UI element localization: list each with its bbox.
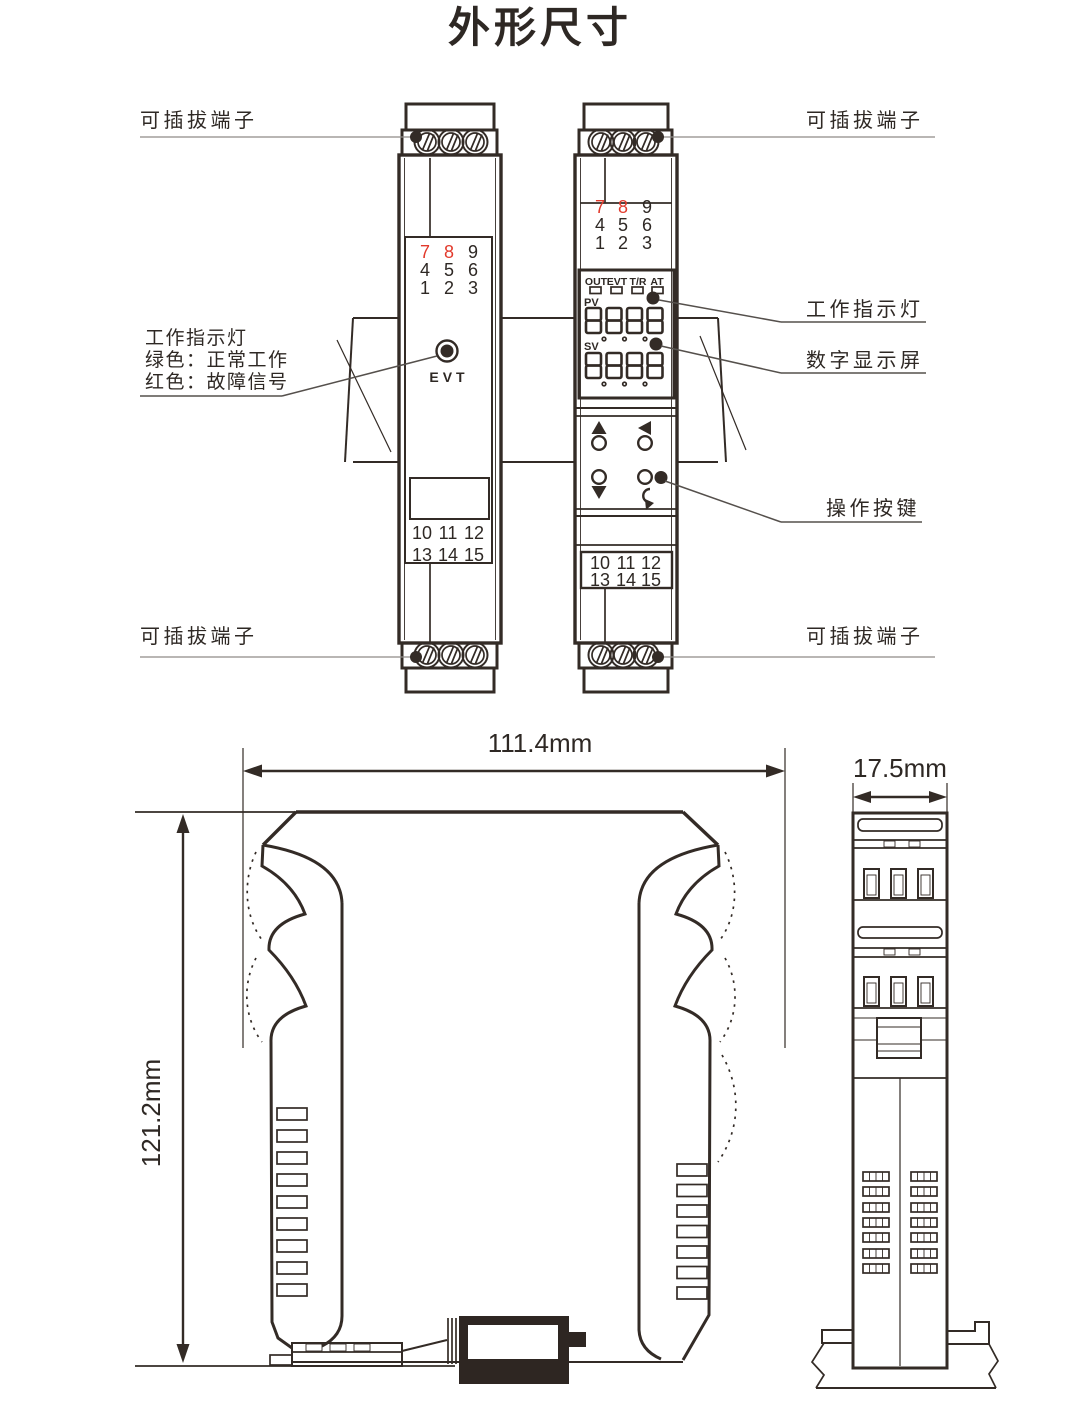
terminal-number: 3 <box>468 278 478 298</box>
terminal-number: 1 <box>420 278 430 298</box>
terminal-number: 5 <box>444 260 454 280</box>
label-work-indicator-right: 工作指示灯 <box>806 298 924 321</box>
screw-icon <box>611 130 636 155</box>
down-arrow-icon <box>592 486 607 499</box>
dimension-width: 111.4mm <box>243 728 785 1048</box>
operation-keys <box>576 408 676 516</box>
label-terminal-bottom-left: 可插拔端子 <box>140 625 258 648</box>
device-body <box>399 155 501 643</box>
terminal-holes-top <box>864 869 933 898</box>
latch-detail <box>877 1018 921 1058</box>
din-rail-clip <box>448 1316 586 1384</box>
callout-dot <box>652 131 664 143</box>
side-view <box>247 812 736 1384</box>
enter-button <box>638 470 652 484</box>
callout-dot <box>410 651 422 663</box>
screw-icon <box>439 130 464 155</box>
terminal-number: 8 <box>618 197 628 217</box>
vent-slots-right <box>677 1164 707 1299</box>
terminal-number: 4 <box>595 215 605 235</box>
label-work-indicator-left: 工作指示灯 <box>145 327 248 349</box>
callout-dot <box>410 131 422 143</box>
terminal-number: 3 <box>642 233 652 253</box>
shift-button <box>638 436 652 450</box>
terminal-cap-bottom <box>584 668 668 692</box>
device-front-view-left: 7 8 9 4 5 6 1 2 3 EVT 10 11 12 13 14 15 <box>399 104 501 692</box>
callouts: 可插拔端子 可插拔端子 可插拔端子 可插拔端子 工作指示灯 绿色：正常工作 红色… <box>140 109 935 663</box>
up-button <box>592 436 606 450</box>
terminal-cap-top <box>406 104 494 130</box>
callout-dot <box>647 292 660 305</box>
screw-icon <box>439 643 464 668</box>
arrowhead-icon <box>853 791 871 803</box>
label-indicator-green: 绿色：正常工作 <box>145 349 289 371</box>
terminal-number: 10 <box>412 523 432 543</box>
label-window <box>410 478 489 519</box>
terminal-number: 4 <box>420 260 430 280</box>
evt-led-label: EVT <box>429 369 468 385</box>
phantom-line <box>247 852 262 940</box>
terminal-cap-top <box>584 104 668 130</box>
terminal-number: 1 <box>595 233 605 253</box>
callout-dot <box>655 471 668 484</box>
terminal-number: 14 <box>438 545 458 565</box>
sv-seven-segment-digits <box>586 353 663 386</box>
sv-label: SV <box>584 341 599 353</box>
height-dimension-label: 121.2mm <box>136 1059 166 1167</box>
callout-dot <box>652 651 664 663</box>
label-terminal-bottom-right: 可插拔端子 <box>806 625 924 648</box>
terminal-number: 9 <box>642 197 652 217</box>
left-arrow-icon <box>638 421 651 435</box>
arrowhead-icon <box>929 791 947 803</box>
label-terminal-top-right: 可插拔端子 <box>806 109 924 132</box>
up-arrow-icon <box>592 421 607 434</box>
terminal-number: 6 <box>642 215 652 235</box>
phantom-line <box>247 958 262 1042</box>
terminal-number: 9 <box>468 242 478 262</box>
terminal-number: 13 <box>590 570 610 590</box>
end-view <box>812 813 998 1388</box>
vent-grid-right <box>911 1172 937 1273</box>
terminal-cap-bottom <box>406 668 494 692</box>
page-title: 外形尺寸 <box>448 4 632 51</box>
terminal-number: 13 <box>412 545 432 565</box>
callout-dot <box>650 338 663 351</box>
arrowhead-icon <box>177 814 190 833</box>
terminal-number: 6 <box>468 260 478 280</box>
rail-break-mark <box>700 336 746 450</box>
width-dimension-label: 111.4mm <box>488 728 593 758</box>
vent-slots-left <box>277 1108 307 1296</box>
terminal-number: 14 <box>616 570 636 590</box>
terminal-number: 5 <box>618 215 628 235</box>
digital-display: OUT EVT T/R AT PV SV <box>579 270 674 398</box>
arrowhead-icon <box>177 1344 190 1363</box>
screw-icon <box>463 130 488 155</box>
arrowhead-icon <box>766 765 785 778</box>
terminal-number: 7 <box>595 197 605 217</box>
terminal-number: 15 <box>641 570 661 590</box>
label-indicator-red: 红色：故障信号 <box>145 371 289 393</box>
label-terminal-top-left: 可插拔端子 <box>140 109 258 132</box>
label-digital-display: 数字显示屏 <box>806 349 924 372</box>
arrowhead-icon <box>243 765 262 778</box>
device-front-view-right: 7 8 9 4 5 6 1 2 3 OUT EVT T/R AT PV <box>575 104 677 692</box>
phantom-line <box>720 852 735 940</box>
depth-dimension-label: 17.5mm <box>853 753 947 783</box>
rail-break-mark <box>337 340 391 452</box>
terminal-number: 2 <box>618 233 628 253</box>
label-operation-buttons: 操作按键 <box>826 497 920 520</box>
down-button <box>592 470 606 484</box>
phantom-line <box>718 1055 736 1162</box>
dimension-depth: 17.5mm <box>853 753 947 818</box>
terminal-number: 12 <box>464 523 484 543</box>
terminal-number: 7 <box>420 242 430 262</box>
vent-grid-left <box>863 1172 889 1273</box>
phantom-line <box>720 958 735 1042</box>
left-scallop-profile <box>262 845 306 1348</box>
right-scallop-profile <box>675 845 719 1360</box>
terminal-number: 15 <box>464 545 484 565</box>
diagram-canvas: 外形尺寸 7 8 9 4 5 6 1 2 3 EVT <box>0 0 1080 1415</box>
terminal-number: 11 <box>439 523 458 543</box>
terminal-holes-bottom <box>864 977 933 1006</box>
terminal-number: 8 <box>444 242 454 262</box>
pv-seven-segment-digits <box>586 308 663 341</box>
outline-dimension-drawing: 外形尺寸 7 8 9 4 5 6 1 2 3 EVT <box>0 0 1080 1415</box>
screw-icon <box>463 643 488 668</box>
din-rail-cross-section <box>812 1322 998 1388</box>
terminal-number: 2 <box>444 278 454 298</box>
screw-icon <box>611 643 636 668</box>
